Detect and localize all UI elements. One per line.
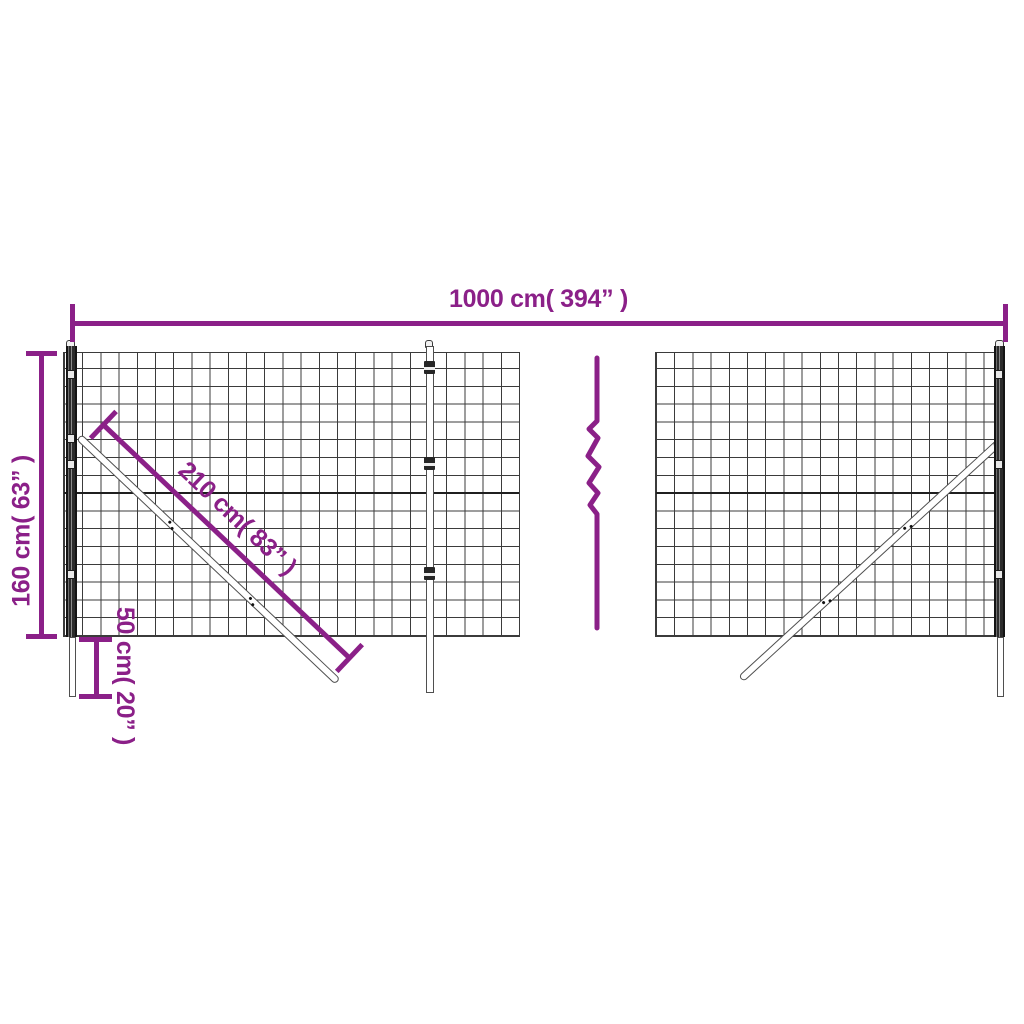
depth-dimension-line [94, 639, 99, 697]
post-clamp [424, 361, 435, 374]
zigzag-break-icon [575, 350, 619, 634]
post-clamp [67, 460, 75, 469]
brace-screw [821, 601, 825, 605]
brace-dimension-cap-end [335, 643, 364, 673]
post-right [994, 346, 1005, 637]
brace-screw [248, 596, 252, 600]
post-left-underground [69, 637, 76, 697]
depth-dimension-label: 50 cm( 20” ) [110, 607, 138, 745]
mesh-panel-left [63, 352, 520, 637]
post-clamp [424, 567, 435, 580]
post-clamp [67, 434, 75, 443]
post-clamp [67, 570, 75, 579]
post-clamp [995, 370, 1003, 379]
post-clamp [995, 460, 1003, 469]
post-clamp [995, 570, 1003, 579]
height-dimension-cap-bottom [26, 634, 57, 639]
post-right-underground [997, 637, 1004, 697]
width-dimension-cap-right [1003, 304, 1008, 342]
post-clamp [67, 370, 75, 379]
fence-dimension-diagram: 1000 cm( 394” ) 160 cm( 63” ) 50 cm( 20”… [0, 0, 1024, 1024]
height-dimension-label: 160 cm( 63” ) [8, 455, 36, 607]
width-dimension-line [72, 321, 1005, 326]
brace-screw [903, 526, 907, 530]
brace-screw [168, 520, 172, 524]
height-dimension-cap-top [26, 351, 57, 356]
post-middle [426, 346, 434, 693]
width-dimension-label: 1000 cm( 394” ) [72, 286, 1005, 314]
depth-dimension-cap-top [79, 637, 112, 642]
brace-screw [170, 526, 174, 530]
post-left [66, 346, 77, 637]
height-dimension-line [39, 353, 44, 637]
brace-screw [251, 603, 255, 607]
depth-dimension-cap-bottom [79, 694, 112, 699]
width-dimension-cap-left [70, 304, 75, 342]
post-clamp [424, 457, 435, 470]
